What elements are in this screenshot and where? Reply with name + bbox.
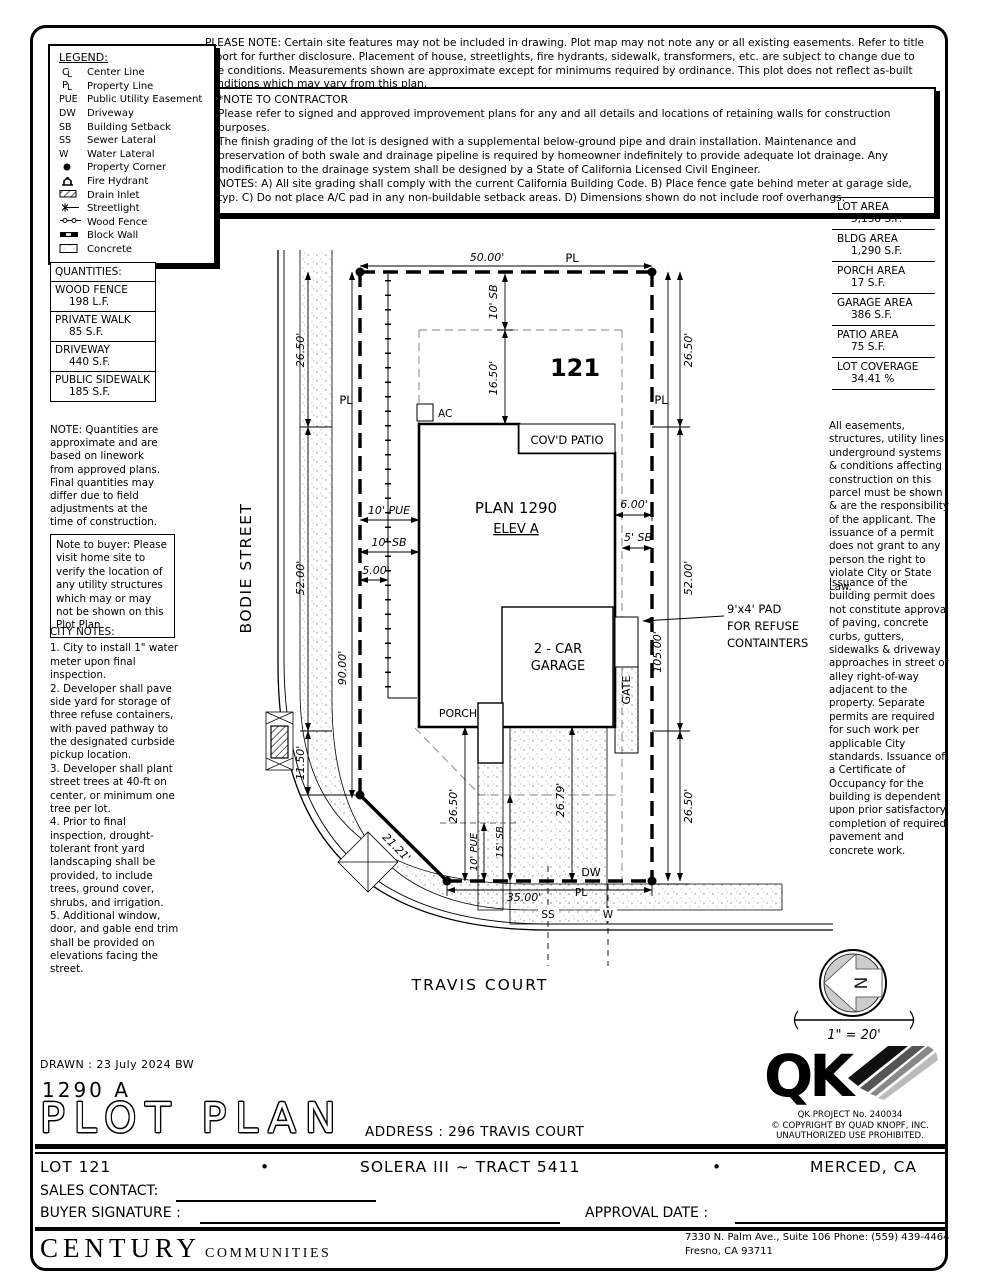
north-arrow: N xyxy=(820,950,886,1016)
plan-name: PLAN 1290 xyxy=(475,499,557,517)
svg-text:10' PUE: 10' PUE xyxy=(368,504,410,517)
note-to-contractor-box: *NOTE TO CONTRACTOR Please refer to sign… xyxy=(208,87,936,215)
table-row: WOOD FENCE198 L.F. xyxy=(51,281,155,311)
svg-text:COV'D PATIO: COV'D PATIO xyxy=(530,433,603,447)
legend-item-pue: PUE Public Utility Easement xyxy=(59,93,207,107)
divider xyxy=(35,1152,948,1154)
svg-text:5.00': 5.00' xyxy=(362,564,390,577)
lot-label: LOT 121 xyxy=(40,1158,111,1176)
legend-item-property-line: PL Property Line xyxy=(59,80,207,94)
svg-text:AC: AC xyxy=(438,408,452,420)
builder-name-sub: COMMUNITIES xyxy=(205,1246,331,1261)
svg-text:26.50': 26.50' xyxy=(447,789,460,824)
legend-item-setback: SB Building Setback xyxy=(59,120,207,134)
drawn-by: DRAWN : 23 July 2024 BW xyxy=(40,1058,194,1071)
porch xyxy=(478,703,503,763)
table-row: PRIVATE WALK85 S.F. xyxy=(51,311,155,341)
builder-office-info: 7330 N. Palm Ave., Suite 106 Phone: (559… xyxy=(685,1231,949,1258)
buyer-signature-label: BUYER SIGNATURE : xyxy=(40,1205,181,1221)
svg-text:26.50': 26.50' xyxy=(682,333,695,368)
qk-logo-block: QK QK PROJECT No. 240034 © COPYRIGHT BY … xyxy=(762,1044,938,1142)
table-row: PUBLIC SIDEWALK185 S.F. xyxy=(51,371,155,401)
city-notes-title: CITY NOTES: xyxy=(50,626,180,639)
street-name-bottom: TRAVIS COURT xyxy=(411,976,549,994)
refuse-leader-arrow xyxy=(643,616,724,621)
please-note-paragraph: PLEASE NOTE: Certain site features may n… xyxy=(205,37,932,92)
svg-text:GARAGE: GARAGE xyxy=(531,659,585,674)
buyer-signature-field[interactable] xyxy=(200,1221,560,1224)
plot-plan-page: PLEASE NOTE: Certain site features may n… xyxy=(0,0,982,1278)
svg-text:10' SB: 10' SB xyxy=(487,284,500,319)
site-plan-drawing: 50.00' 26.50' 52.00' 11.50' 90.00' 26.50… xyxy=(200,240,950,1045)
contractor-note-body: Please refer to signed and approved impr… xyxy=(218,108,926,206)
svg-text:26.50': 26.50' xyxy=(294,333,307,368)
contractor-note-title: *NOTE TO CONTRACTOR xyxy=(218,94,926,108)
legend-item-sewer: SS Sewer Lateral xyxy=(59,134,207,148)
svg-text:PL: PL xyxy=(339,393,353,407)
quantities-note: NOTE: Quantities are approximate and are… xyxy=(50,424,166,529)
sales-contact-field[interactable] xyxy=(176,1199,376,1202)
legend-box: LEGEND: CL Center Line PL Property Line … xyxy=(48,44,216,265)
bullet: • xyxy=(712,1158,722,1176)
svg-text:N: N xyxy=(852,977,872,990)
drain-inlet xyxy=(266,712,293,770)
svg-text:DW: DW xyxy=(581,866,600,879)
svg-text:5' SB: 5' SB xyxy=(624,531,652,544)
svg-text:FOR REFUSE: FOR REFUSE xyxy=(727,619,799,633)
lot-number: 121 xyxy=(550,354,600,382)
city-label: MERCED, CA xyxy=(810,1158,917,1176)
sheet-title: PLOT PLAN xyxy=(40,1094,345,1142)
tract-label: SOLERA III ~ TRACT 5411 xyxy=(360,1158,580,1176)
concrete-icon xyxy=(59,242,87,258)
legend-item-concrete: Concrete xyxy=(59,243,207,257)
svg-text:26.79': 26.79' xyxy=(554,783,567,818)
svg-text:PORCH: PORCH xyxy=(439,707,477,720)
svg-text:35.00': 35.00' xyxy=(507,891,542,904)
table-row: LOT AREA5,138 S.F. xyxy=(832,197,935,230)
svg-text:11.50': 11.50' xyxy=(294,746,307,781)
quantities-title: QUANTITIES: xyxy=(51,263,155,281)
address-label: ADDRESS : xyxy=(365,1124,443,1140)
svg-text:L: L xyxy=(67,70,72,78)
svg-text:PL: PL xyxy=(654,393,668,407)
svg-text:SS: SS xyxy=(541,909,555,921)
approval-date-field[interactable] xyxy=(735,1221,945,1224)
street-name-left: BODIE STREET xyxy=(237,503,255,634)
svg-text:6.00': 6.00' xyxy=(620,498,648,511)
svg-text:2 - CAR: 2 - CAR xyxy=(534,642,582,657)
quantities-table: QUANTITIES: WOOD FENCE198 L.F. PRIVATE W… xyxy=(50,262,156,402)
qk-prohibited: UNAUTHORIZED USE PROHIBITED. xyxy=(762,1131,938,1142)
svg-text:GATE: GATE xyxy=(620,676,633,705)
svg-text:9'x4' PAD: 9'x4' PAD xyxy=(727,602,781,616)
svg-text:L: L xyxy=(67,83,72,91)
legend-item-driveway: DW Driveway xyxy=(59,107,207,121)
qk-copyright: © COPYRIGHT BY QUAD KNOPF, INC. xyxy=(762,1121,938,1132)
svg-text:52.00': 52.00' xyxy=(294,561,307,596)
svg-text:QK: QK xyxy=(764,1044,856,1106)
svg-text:W: W xyxy=(603,909,614,921)
divider xyxy=(35,1144,948,1149)
svg-text:10' PUE: 10' PUE xyxy=(469,832,480,871)
svg-text:90.00': 90.00' xyxy=(336,651,349,686)
gate xyxy=(615,617,638,667)
office-address: 7330 N. Palm Ave., Suite 106 Phone: (559… xyxy=(685,1231,949,1245)
office-city: Fresno, CA 93711 xyxy=(685,1245,949,1259)
svg-text:CONTAINTERS: CONTAINTERS xyxy=(727,636,808,650)
bullet: • xyxy=(260,1158,270,1176)
address-value: 296 TRAVIS COURT xyxy=(448,1124,584,1140)
svg-text:10' SB: 10' SB xyxy=(371,536,406,549)
qk-project-number: QK PROJECT No. 240034 xyxy=(762,1110,938,1121)
svg-text:15' SB: 15' SB xyxy=(495,826,506,858)
wood-fence-line xyxy=(388,274,417,698)
note-to-buyer-box: Note to buyer: Please visit home site to… xyxy=(50,534,175,638)
scale-text: 1" = 20' xyxy=(827,1028,881,1043)
sales-contact-label: SALES CONTACT: xyxy=(40,1183,158,1199)
elevation: ELEV A xyxy=(493,522,539,537)
property-line-symbol-icon: PL xyxy=(59,78,87,94)
svg-text:52.00': 52.00' xyxy=(682,561,695,596)
legend-title: LEGEND: xyxy=(59,51,207,64)
address-row: ADDRESS : 296 TRAVIS COURT xyxy=(365,1124,584,1140)
builder-logo: CENTURY COMMUNITIES xyxy=(40,1233,331,1264)
qk-logo: QK xyxy=(762,1044,938,1106)
svg-text:PL: PL xyxy=(575,887,587,899)
qk-logo-stripes xyxy=(848,1046,938,1100)
svg-text:105.00': 105.00' xyxy=(651,631,664,673)
city-notes: CITY NOTES: 1. City to install 1" water … xyxy=(50,626,180,977)
city-notes-body: 1. City to install 1" water meter upon f… xyxy=(50,642,180,976)
svg-text:PL: PL xyxy=(565,251,579,265)
builder-name: CENTURY xyxy=(40,1233,201,1263)
svg-text:50.00': 50.00' xyxy=(470,251,505,264)
table-row: DRIVEWAY440 S.F. xyxy=(51,341,155,371)
svg-text:16.50': 16.50' xyxy=(487,361,500,396)
svg-text:26.50': 26.50' xyxy=(682,789,695,824)
ac-pad xyxy=(417,404,433,421)
approval-date-label: APPROVAL DATE : xyxy=(585,1205,708,1221)
